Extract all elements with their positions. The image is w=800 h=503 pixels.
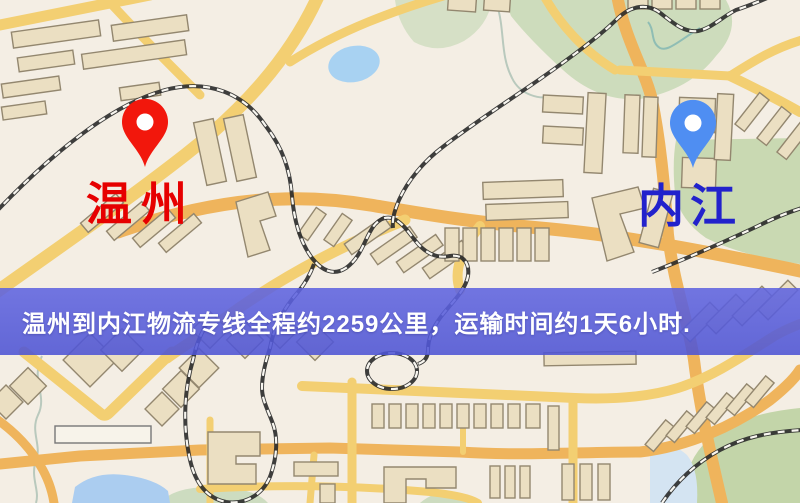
origin-city-label: 温州 xyxy=(86,181,196,227)
route-info-banner: 温州到内江物流专线全程约2259公里，运输时间约1天6小时. xyxy=(0,288,800,355)
destination-city-label: 内江 xyxy=(638,183,742,229)
logistics-route-map: 温州到内江物流专线全程约2259公里，运输时间约1天6小时. 温州 内江 xyxy=(0,0,800,503)
map-pin-blue-icon xyxy=(665,98,721,170)
map-pin-red-icon xyxy=(117,97,173,169)
route-info-text: 温州到内江物流专线全程约2259公里，运输时间约1天6小时. xyxy=(0,304,691,339)
map-canvas xyxy=(0,0,800,503)
